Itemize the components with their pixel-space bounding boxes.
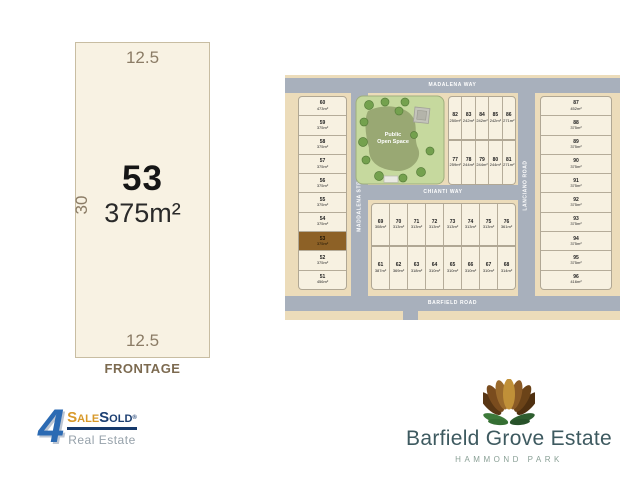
map-lot-95: 95375m² xyxy=(541,251,611,269)
map-lot-64: 64310m² xyxy=(426,247,443,289)
map-lot-area: 375m² xyxy=(317,165,328,169)
registered-mark: ® xyxy=(132,415,136,421)
lot-area: 375m² xyxy=(76,198,209,229)
map-lot-area: 375m² xyxy=(570,222,581,226)
map-lot-68: 68314m² xyxy=(498,247,515,289)
map-lot-84: 84242m² xyxy=(476,97,488,139)
map-lot-91: 91375m² xyxy=(541,174,611,192)
map-lot-area: 375m² xyxy=(570,165,581,169)
map-lot-area: 375m² xyxy=(570,145,581,149)
map-lot-area: 244m² xyxy=(463,163,474,167)
map-lot-area: 250m² xyxy=(450,119,461,123)
map-lot-area: 308m² xyxy=(375,225,386,229)
map-lot-66: 66310m² xyxy=(462,247,479,289)
map-lot-area: 416m² xyxy=(570,280,581,284)
map-lot-92: 92375m² xyxy=(541,193,611,211)
street-label-madalena-way: MADALENA WAY xyxy=(285,82,620,89)
estate-logo: Barfield Grove Estate HAMMOND PARK xyxy=(393,379,625,463)
agency-tagline: Real Estate xyxy=(67,433,137,447)
map-lot-area: 271m² xyxy=(503,119,514,123)
agency-sale-rest: ALE xyxy=(77,413,99,425)
agency-sale-initial: S xyxy=(67,409,77,426)
map-lot-area: 375m² xyxy=(570,242,581,246)
agency-logo-wordmark: SALESOLD® Real Estate xyxy=(67,402,137,458)
map-lot-61: 61387m² xyxy=(372,247,389,289)
map-lot-area: 375m² xyxy=(317,242,328,246)
map-lot-area: 369m² xyxy=(393,269,404,273)
map-lot-53: 53375m² xyxy=(299,232,346,250)
map-lot-area: 473m² xyxy=(317,107,328,111)
lot-detail-diagram: 12.5 30 53 375m² 12.5 xyxy=(75,42,210,358)
map-lot-area: 361m² xyxy=(501,225,512,229)
map-lot-71: 71313m² xyxy=(408,204,425,245)
map-lot-area: 375m² xyxy=(570,203,581,207)
block-central-row1: 69308m²70313m²71313m²72313m²73313m²74313… xyxy=(371,203,516,246)
map-lot-55: 55375m² xyxy=(299,193,346,211)
map-lot-area: 242m² xyxy=(476,119,487,123)
map-lot-area: 375m² xyxy=(317,261,328,265)
map-lot-96: 96416m² xyxy=(541,271,611,289)
map-lot-83: 83242m² xyxy=(462,97,474,139)
map-lot-area: 375m² xyxy=(317,145,328,149)
street-label-chianti-way: CHIANTI WAY xyxy=(351,189,535,196)
street-label-barfield-road: BARFIELD ROAD xyxy=(285,300,620,307)
map-lot-area: 375m² xyxy=(570,261,581,265)
map-lot-76: 76361m² xyxy=(498,204,515,245)
map-lot-94: 94375m² xyxy=(541,232,611,250)
map-lot-93: 93375m² xyxy=(541,213,611,231)
dimension-bottom: 12.5 xyxy=(76,331,209,351)
map-lot-75: 75313m² xyxy=(480,204,497,245)
map-lot-area: 271m² xyxy=(503,163,514,167)
map-lot-81: 81271m² xyxy=(503,141,515,184)
map-lot-51: 51456m² xyxy=(299,271,346,289)
map-lot-area: 452m² xyxy=(570,107,581,111)
map-lot-78: 78244m² xyxy=(462,141,474,184)
map-lot-86: 86271m² xyxy=(503,97,515,139)
map-lot-area: 318m² xyxy=(411,269,422,273)
map-lot-73: 73313m² xyxy=(444,204,461,245)
dimension-top: 12.5 xyxy=(76,48,209,68)
map-lot-63: 63318m² xyxy=(408,247,425,289)
park-playground xyxy=(413,107,429,123)
agency-logo-rule xyxy=(67,427,137,430)
agency-logo-4: 4 xyxy=(38,402,64,458)
map-lot-area: 375m² xyxy=(570,184,581,188)
block-central-row2: 61387m²62369m²63318m²64310m²65310m²66310… xyxy=(371,246,516,290)
agency-sold-rest: OLD xyxy=(109,413,132,425)
map-lot-area: 259m² xyxy=(450,163,461,167)
map-lot-area: 375m² xyxy=(317,126,328,130)
map-lot-area: 313m² xyxy=(483,225,494,229)
map-lot-69: 69308m² xyxy=(372,204,389,245)
frontage-label: FRONTAGE xyxy=(75,361,210,376)
block-north-row2: 77259m²78244m²79244m²80244m²81271m² xyxy=(448,140,516,185)
map-lot-89: 89375m² xyxy=(541,136,611,154)
map-lot-area: 244m² xyxy=(476,163,487,167)
map-lot-area: 375m² xyxy=(317,222,328,226)
map-lot-54: 54375m² xyxy=(299,213,346,231)
estate-site-map: MADALENA WAY CHIANTI WAY BARFIELD ROAD M… xyxy=(285,75,620,320)
map-lot-area: 244m² xyxy=(490,163,501,167)
street-label-lanciano-road: LANCIANO ROAD xyxy=(523,146,530,226)
agency-sold-initial: S xyxy=(99,409,109,426)
map-lot-area: 313m² xyxy=(429,225,440,229)
map-lot-area: 310m² xyxy=(447,269,458,273)
map-lot-area: 387m² xyxy=(375,269,386,273)
map-lot-area: 314m² xyxy=(501,269,512,273)
map-lot-85: 85242m² xyxy=(489,97,501,139)
estate-suburb: HAMMOND PARK xyxy=(393,455,625,464)
map-lot-65: 65310m² xyxy=(444,247,461,289)
park-label: Public Open Space xyxy=(363,132,423,146)
map-lot-area: 313m² xyxy=(411,225,422,229)
map-lot-87: 87452m² xyxy=(541,97,611,115)
map-lot-area: 375m² xyxy=(570,126,581,130)
map-lot-82: 82250m² xyxy=(449,97,461,139)
pinecone-icon xyxy=(483,379,535,426)
map-lot-area: 313m² xyxy=(447,225,458,229)
map-lot-90: 90375m² xyxy=(541,155,611,173)
block-east-column: 87452m²88375m²89375m²90375m²91375m²92375… xyxy=(540,96,612,290)
map-lot-77: 77259m² xyxy=(449,141,461,184)
map-lot-67: 67310m² xyxy=(480,247,497,289)
map-lot-80: 80244m² xyxy=(489,141,501,184)
map-lot-area: 375m² xyxy=(317,203,328,207)
map-lot-62: 62369m² xyxy=(390,247,407,289)
estate-name: Barfield Grove Estate xyxy=(393,427,625,451)
map-lot-area: 310m² xyxy=(429,269,440,273)
block-north-row1: 82250m²83242m²84242m²85242m²86271m² xyxy=(448,96,516,140)
road-stub-south xyxy=(403,311,418,320)
map-lot-area: 242m² xyxy=(463,119,474,123)
map-lot-59: 59375m² xyxy=(299,116,346,134)
map-lot-57: 57375m² xyxy=(299,155,346,173)
map-lot-70: 70313m² xyxy=(390,204,407,245)
lot-number: 53 xyxy=(76,159,209,199)
map-lot-56: 56375m² xyxy=(299,174,346,192)
map-lot-area: 242m² xyxy=(490,119,501,123)
park-shelter xyxy=(384,176,398,183)
agency-logo: 4 SALESOLD® Real Estate xyxy=(38,402,168,458)
map-lot-area: 456m² xyxy=(317,280,328,284)
estate-flyer: 12.5 30 53 375m² 12.5 FRONTAGE MADALENA … xyxy=(0,0,640,480)
map-lot-72: 72313m² xyxy=(426,204,443,245)
map-lot-60: 60473m² xyxy=(299,97,346,115)
map-lot-area: 313m² xyxy=(393,225,404,229)
block-west-column: 60473m²59375m²58375m²57375m²56375m²55375… xyxy=(298,96,347,290)
map-lot-area: 313m² xyxy=(465,225,476,229)
map-lot-88: 88375m² xyxy=(541,116,611,134)
map-lot-area: 310m² xyxy=(483,269,494,273)
map-lot-74: 74313m² xyxy=(462,204,479,245)
map-lot-area: 375m² xyxy=(317,184,328,188)
public-open-space: Public Open Space xyxy=(355,95,445,185)
map-lot-52: 52375m² xyxy=(299,251,346,269)
map-lot-area: 310m² xyxy=(465,269,476,273)
map-lot-58: 58375m² xyxy=(299,136,346,154)
map-lot-79: 79244m² xyxy=(476,141,488,184)
